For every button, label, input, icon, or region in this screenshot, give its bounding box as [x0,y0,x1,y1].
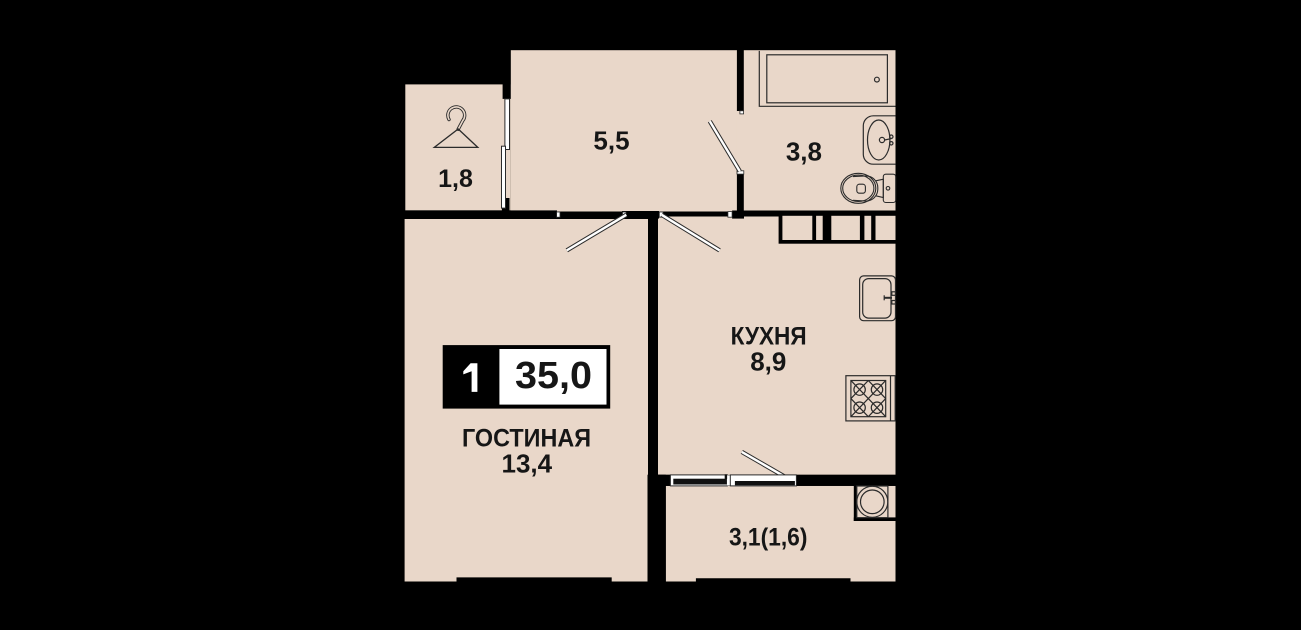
svg-text:35,0: 35,0 [515,355,592,397]
svg-text:5,5: 5,5 [593,125,629,155]
svg-text:3,8: 3,8 [786,137,822,167]
svg-text:8,9: 8,9 [750,347,786,377]
svg-text:13,4: 13,4 [501,449,552,479]
svg-text:1,8: 1,8 [438,165,473,193]
svg-text:3,1(1,6): 3,1(1,6) [729,524,808,552]
